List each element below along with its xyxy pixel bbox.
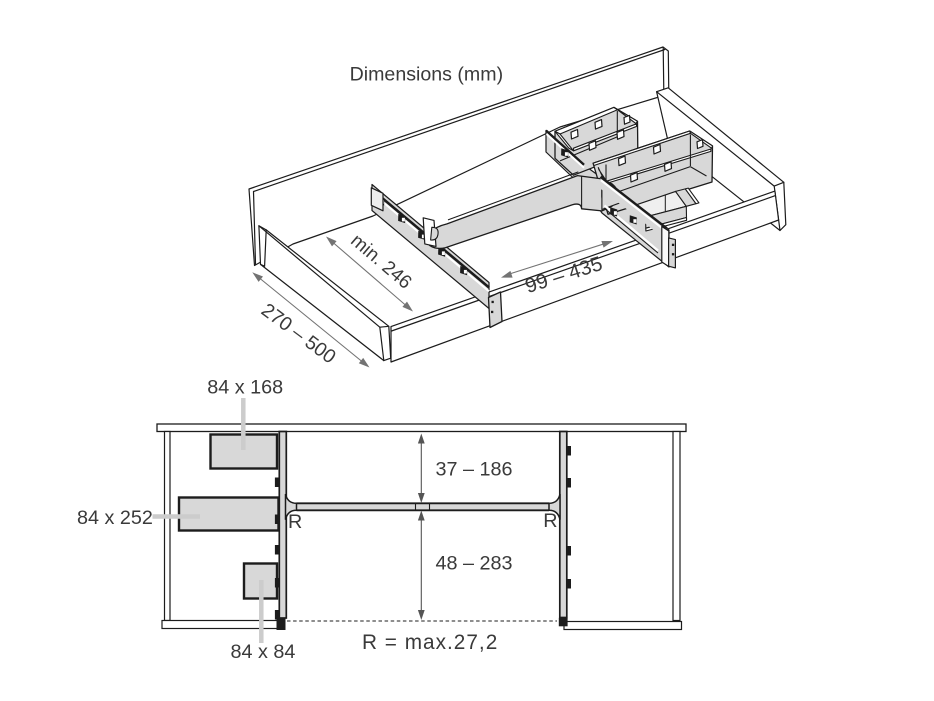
svg-text:48 – 283: 48 – 283 (436, 552, 513, 574)
svg-text:84 x 84: 84 x 84 (231, 641, 296, 663)
svg-text:R: R (543, 510, 557, 532)
svg-text:R = max.27,2: R = max.27,2 (362, 631, 498, 654)
svg-text:Dimensions (mm): Dimensions (mm) (350, 64, 504, 86)
svg-text:84 x 252: 84 x 252 (77, 507, 153, 529)
svg-text:R: R (288, 511, 302, 533)
svg-text:84 x 168: 84 x 168 (207, 377, 283, 399)
svg-text:37 – 186: 37 – 186 (436, 458, 513, 480)
